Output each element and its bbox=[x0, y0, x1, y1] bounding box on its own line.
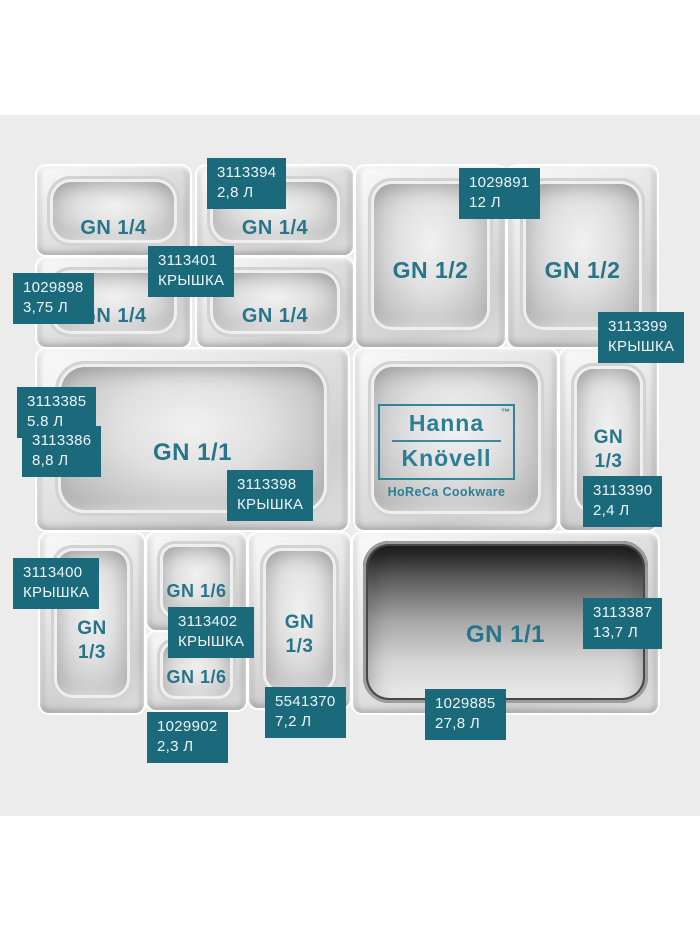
pan-brand-logo: ™ Hanna Knövell HoReCa Cookware bbox=[355, 349, 557, 530]
product-code-tag: 3113401 КРЫШКА bbox=[148, 246, 234, 297]
brand-name-line1: Hanna bbox=[384, 410, 509, 437]
tag-value: КРЫШКА bbox=[608, 337, 674, 357]
pan-size-label: GN 1/3 bbox=[40, 617, 144, 665]
pan-size-label: GN 1/4 bbox=[197, 304, 353, 329]
brand-logo-frame: ™ Hanna Knövell bbox=[378, 404, 515, 480]
tag-value: 2,3 Л bbox=[157, 737, 218, 757]
tag-code: 1029885 bbox=[435, 694, 496, 714]
pan-size-label: GN 1/2 bbox=[356, 256, 505, 285]
product-code-tag: 3113398 КРЫШКА bbox=[227, 470, 313, 521]
tag-value: 3,75 Л bbox=[23, 298, 84, 318]
product-photo: GN 1/4 GN 1/4 GN 1/4 GN 1/4 GN 1/2 GN 1/… bbox=[0, 0, 700, 933]
tag-value: КРЫШКА bbox=[178, 632, 244, 652]
pan-size-label: GN 1/4 bbox=[37, 216, 190, 241]
product-code-tag: 3113402 КРЫШКА bbox=[168, 607, 254, 658]
product-code-tag: 5541370 7,2 Л bbox=[265, 687, 346, 738]
brand-logo-divider bbox=[392, 440, 501, 442]
tag-value: КРЫШКА bbox=[23, 583, 89, 603]
tag-code: 3113402 bbox=[178, 612, 244, 632]
tag-value: 7,2 Л bbox=[275, 712, 336, 732]
tag-value: 2,8 Л bbox=[217, 183, 276, 203]
product-code-tag: 1029902 2,3 Л bbox=[147, 712, 228, 763]
tag-code: 1029902 bbox=[157, 717, 218, 737]
trademark-symbol: ™ bbox=[501, 407, 510, 417]
tag-value: КРЫШКА bbox=[237, 495, 303, 515]
tag-code: 5541370 bbox=[275, 692, 336, 712]
product-code-tag: 3113399 КРЫШКА bbox=[598, 312, 684, 363]
tag-code: 3113387 bbox=[593, 603, 652, 623]
tag-value: 2,4 Л bbox=[593, 501, 652, 521]
product-code-tag: 3113386 8,8 Л bbox=[22, 426, 101, 477]
brand-tagline: HoReCa Cookware bbox=[378, 485, 515, 499]
product-code-tag: 3113390 2,4 Л bbox=[583, 476, 662, 527]
pan-size-label: GN 1/6 bbox=[147, 666, 246, 689]
tag-code: 1029891 bbox=[469, 173, 530, 193]
pan-size-label: GN 1/2 bbox=[508, 256, 657, 285]
pan-size-label: GN 1/4 bbox=[197, 216, 353, 241]
pan-size-label: GN 1/6 bbox=[147, 580, 246, 603]
pan-gn13-bottom-middle: GN 1/3 bbox=[249, 533, 350, 708]
product-code-tag: 1029891 12 Л bbox=[459, 168, 540, 219]
brand-logo: ™ Hanna Knövell HoReCa Cookware bbox=[378, 404, 515, 499]
brand-name-line2: Knövell bbox=[384, 445, 509, 472]
tag-value: 27,8 Л bbox=[435, 714, 496, 734]
tag-value: 13,7 Л bbox=[593, 623, 652, 643]
product-code-tag: 3113387 13,7 Л bbox=[583, 598, 662, 649]
tag-code: 3113390 bbox=[593, 481, 652, 501]
product-code-tag: 1029898 3,75 Л bbox=[13, 273, 94, 324]
pan-gn14-top-left: GN 1/4 bbox=[37, 166, 190, 255]
tag-code: 3113399 bbox=[608, 317, 674, 337]
tag-code: 3113401 bbox=[158, 251, 224, 271]
tag-code: 3113394 bbox=[217, 163, 276, 183]
product-code-tag: 1029885 27,8 Л bbox=[425, 689, 506, 740]
tag-code: 3113386 bbox=[32, 431, 91, 451]
pan-size-label: GN 1/3 bbox=[249, 611, 350, 659]
tag-value: КРЫШКА bbox=[158, 271, 224, 291]
product-code-tag: 3113394 2,8 Л bbox=[207, 158, 286, 209]
pan-size-label: GN 1/3 bbox=[560, 426, 657, 474]
product-code-tag: 3113400 КРЫШКА bbox=[13, 558, 99, 609]
tag-value: 8,8 Л bbox=[32, 451, 91, 471]
tag-value: 12 Л bbox=[469, 193, 530, 213]
tag-code: 3113400 bbox=[23, 563, 89, 583]
tag-code: 3113385 bbox=[27, 392, 86, 412]
tag-code: 1029898 bbox=[23, 278, 84, 298]
tag-code: 3113398 bbox=[237, 475, 303, 495]
